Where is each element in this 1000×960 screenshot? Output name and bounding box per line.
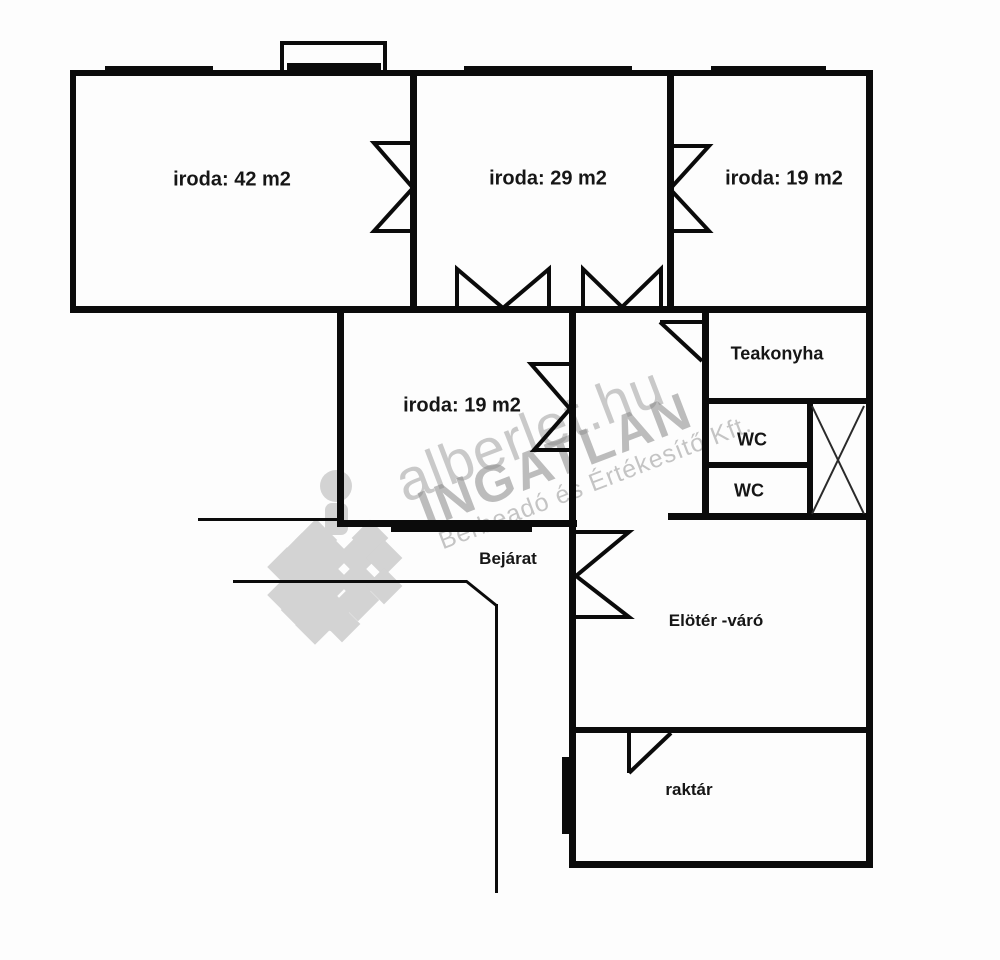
room-label-office-19-top: iroda: 19 m2 [725, 168, 843, 191]
room-label-office-19-mid: iroda: 19 m2 [403, 395, 521, 418]
room-label-eloter-varo: Elötér -váró [669, 611, 763, 631]
room-label-bejarat: Bejárat [479, 549, 537, 569]
floorplan-canvas: alberlet.hu INGATLAN Bérbeadó és Értékes… [0, 0, 1000, 960]
room-label-wc-1: WC [737, 430, 767, 451]
room-label-raktar: raktár [665, 780, 712, 800]
room-label-office-42: iroda: 42 m2 [173, 169, 291, 192]
room-label-office-29: iroda: 29 m2 [489, 168, 607, 191]
room-labels: iroda: 42 m2iroda: 29 m2iroda: 19 m2irod… [0, 0, 1000, 960]
room-label-teakonyha: Teakonyha [731, 344, 824, 365]
room-label-wc-2: WC [734, 481, 764, 502]
